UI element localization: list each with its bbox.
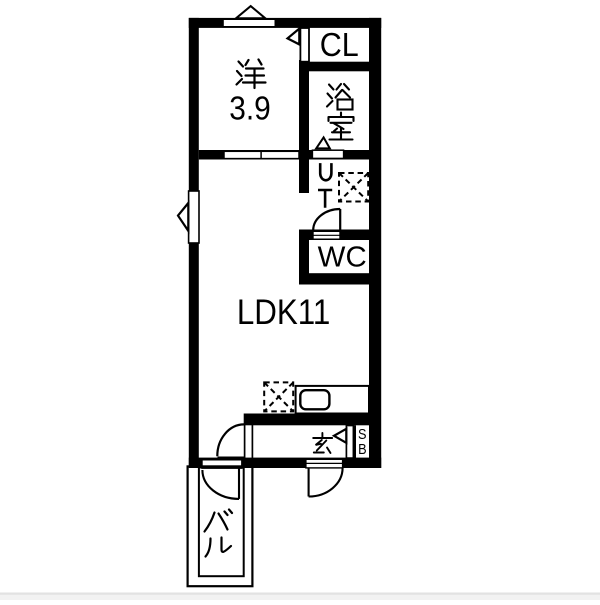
svg-text:3.9: 3.9 <box>229 90 271 127</box>
svg-text:LDK11: LDK11 <box>237 293 331 332</box>
svg-text:CL: CL <box>320 27 359 64</box>
svg-text:WC: WC <box>318 241 367 273</box>
svg-text:B: B <box>358 441 367 458</box>
